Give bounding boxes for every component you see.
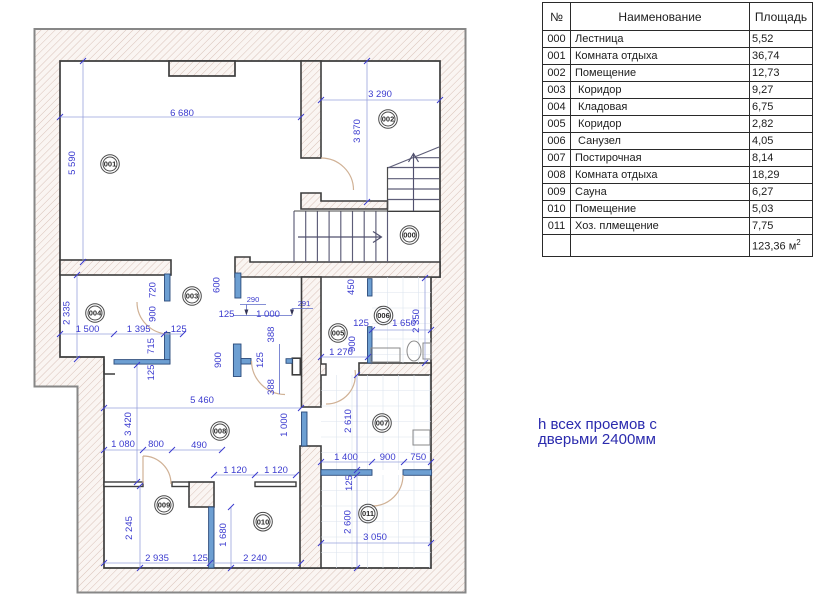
svg-text:2 935: 2 935: [145, 553, 169, 564]
svg-text:900: 900: [148, 306, 159, 322]
svg-text:011: 011: [362, 509, 374, 518]
svg-text:010: 010: [257, 517, 270, 526]
svg-text:125: 125: [344, 475, 355, 491]
svg-text:008: 008: [214, 427, 227, 436]
svg-text:750: 750: [410, 452, 426, 463]
svg-text:1 680: 1 680: [218, 523, 229, 547]
svg-text:388: 388: [266, 379, 277, 395]
svg-text:3 420: 3 420: [123, 412, 134, 436]
svg-text:1 080: 1 080: [111, 439, 135, 450]
svg-text:001: 001: [104, 160, 117, 169]
svg-text:125: 125: [192, 553, 208, 564]
svg-text:388: 388: [266, 327, 277, 343]
svg-text:600: 600: [212, 277, 223, 293]
svg-text:003: 003: [186, 292, 199, 301]
svg-text:1 500: 1 500: [76, 324, 100, 335]
svg-text:900: 900: [380, 452, 396, 463]
svg-text:2 335: 2 335: [62, 301, 73, 325]
svg-text:1 400: 1 400: [334, 452, 358, 463]
svg-text:005: 005: [332, 329, 345, 338]
svg-text:1 120: 1 120: [264, 465, 288, 476]
svg-text:2 350: 2 350: [411, 309, 422, 333]
svg-text:125: 125: [146, 365, 157, 381]
svg-text:2 240: 2 240: [243, 553, 267, 564]
svg-text:000: 000: [403, 231, 416, 240]
svg-text:125: 125: [353, 318, 369, 329]
svg-text:490: 490: [191, 440, 207, 451]
svg-text:3 870: 3 870: [352, 119, 363, 143]
svg-text:3 050: 3 050: [363, 532, 387, 543]
svg-text:007: 007: [376, 419, 389, 428]
svg-text:715: 715: [146, 338, 157, 354]
svg-text:2 600: 2 600: [343, 510, 354, 534]
svg-text:450: 450: [346, 279, 357, 295]
svg-text:125: 125: [171, 324, 187, 335]
svg-text:291: 291: [298, 299, 311, 308]
svg-text:002: 002: [382, 115, 395, 124]
svg-text:1 395: 1 395: [127, 324, 151, 335]
svg-text:1 270: 1 270: [329, 347, 353, 358]
svg-text:1 000: 1 000: [256, 309, 280, 320]
svg-text:5 590: 5 590: [67, 151, 78, 175]
svg-text:125: 125: [255, 352, 266, 368]
svg-text:009: 009: [158, 501, 171, 510]
svg-text:004: 004: [89, 309, 102, 318]
svg-text:2 610: 2 610: [343, 409, 354, 433]
svg-text:1 120: 1 120: [223, 465, 247, 476]
svg-text:900: 900: [213, 352, 224, 368]
svg-text:5 460: 5 460: [190, 395, 214, 406]
svg-text:125: 125: [219, 309, 235, 320]
svg-text:6 680: 6 680: [170, 108, 194, 119]
svg-text:720: 720: [148, 282, 159, 298]
svg-text:006: 006: [377, 311, 390, 320]
svg-text:1 000: 1 000: [279, 413, 290, 437]
svg-text:3 290: 3 290: [368, 89, 392, 100]
svg-text:800: 800: [148, 439, 164, 450]
svg-text:2 245: 2 245: [124, 516, 135, 540]
svg-text:290: 290: [247, 295, 260, 304]
